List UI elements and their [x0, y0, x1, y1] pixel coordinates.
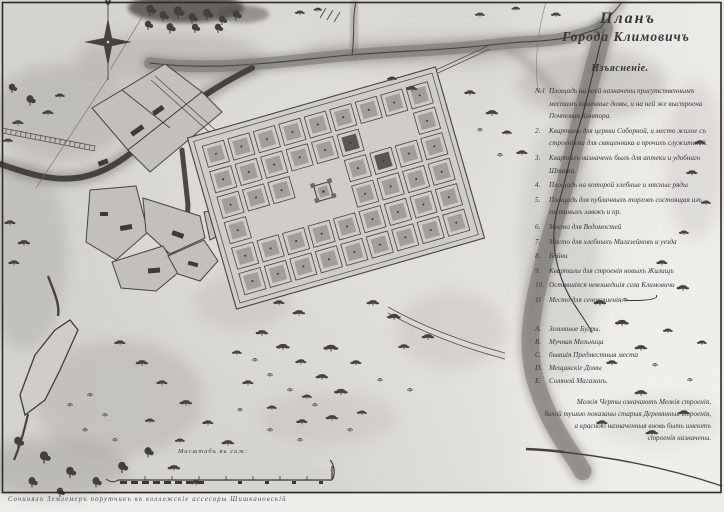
city-grid [187, 67, 484, 309]
pen-flourish [526, 449, 722, 486]
map-canvas [0, 0, 724, 512]
top-hatch-marks [320, 8, 340, 22]
scanned-map-page: Планъ Города Климовичъ Изъясненіе. №1Пло… [0, 0, 724, 512]
scale-bar [106, 460, 334, 484]
